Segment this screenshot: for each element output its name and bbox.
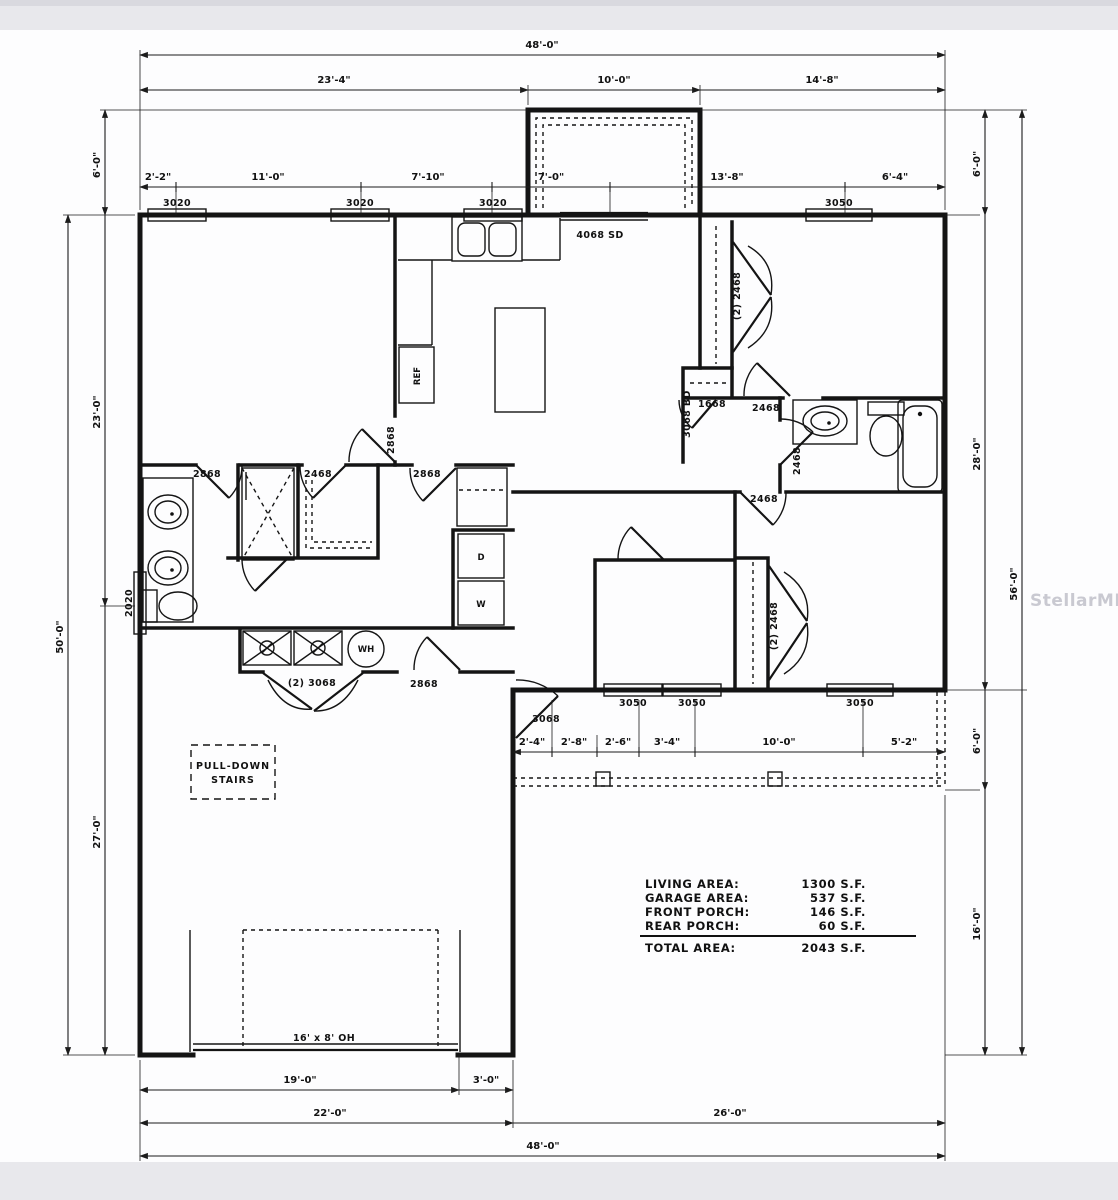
door-label: 2468 [792,447,803,475]
area-row-value: 1300 S.F. [801,877,866,891]
laundry-closet: D W [458,534,504,625]
dim-row2: 13'-8" [710,172,743,183]
dim-right: 6'-0" [972,151,983,177]
dim-left-overall: 50'-0" [55,620,66,653]
area-row-value: 537 S.F. [810,891,866,905]
door-label: 2868 [410,679,438,690]
door-label: 2468 [304,469,332,480]
floor-plan-drawing: 4068 SD REF D W [0,0,1118,1200]
dim-porch: 2'-4" [519,737,545,748]
dim-row2: 7'-0" [538,172,564,183]
dryer-label: D [477,553,484,563]
area-row-label: GARAGE AREA: [645,891,749,905]
porch-post [768,772,782,786]
closet-bed3: (2) 2468 [753,562,808,684]
window-label: 3050 [678,698,706,709]
area-total-label: TOTAL AREA: [645,941,736,955]
dim-porch: 3'-4" [654,737,680,748]
pull-down-stairs: PULL-DOWN STAIRS [191,745,275,799]
hvac-unit [294,631,342,665]
dim-bottom-overall: 48'-0" [526,1141,559,1152]
toilet [142,590,197,622]
page-top-edge [0,0,1118,6]
hvac-unit [243,631,291,665]
dim-right: 16'-0" [972,907,983,940]
dim-row2: 2'-2" [145,172,171,183]
dim-top-right: 14'-8" [805,75,838,86]
window-label: 3050 [846,698,874,709]
dim-bottom: 19'-0" [283,1075,316,1086]
washer-label: W [476,600,486,610]
window: 3020 [331,198,389,221]
dim-porch: 2'-6" [605,737,631,748]
dim-overall-width: 48'-0" [525,40,558,51]
sink [803,406,847,436]
door-label: 3068 BD [682,390,693,438]
dim-row2: 7'-10" [411,172,444,183]
dim-bottom: 22'-0" [313,1108,346,1119]
shower [242,468,294,560]
kitchen-island [495,308,545,412]
water-heater-label: WH [358,645,375,655]
door-label: 2468 [750,494,778,505]
area-row-label: FRONT PORCH: [645,905,750,919]
floor-plan-page: 4068 SD REF D W [0,0,1118,1200]
dim-left: 23'-0" [92,395,103,428]
utility-double-doors: (2) 3068 [263,673,363,711]
dim-left: 6'-0" [92,152,103,178]
door-label: 2468 [752,403,780,414]
dim-porch: 2'-8" [561,737,587,748]
utility-doors-label: (2) 3068 [288,678,336,689]
area-total-value: 2043 S.F. [801,941,866,955]
garage-door: 16' x 8' OH [190,930,460,1052]
window-label: 3020 [163,198,191,209]
dim-bottom: 26'-0" [713,1108,746,1119]
dim-right: 28'-0" [972,437,983,470]
walk-in-closet [306,480,372,548]
dim-bottom: 3'-0" [473,1075,499,1086]
dim-top-left: 23'-4" [317,75,350,86]
dim-right-overall: 56'-0" [1009,567,1020,600]
window-label: 3020 [479,198,507,209]
double-vanity [143,478,193,622]
dim-top-mid: 10'-0" [597,75,630,86]
door-label: 2868 [193,469,221,480]
closet-bed2: (2) 2468 [716,226,772,364]
porch-post [596,772,610,786]
dimension-lines: 48'-0" 23'-4" 10'-0" 14'-8" 2'-2" 11'-0"… [55,40,1027,1161]
dim-row2: 11'-0" [251,172,284,183]
area-row-label: REAR PORCH: [645,919,740,933]
dim-row2: 6'-4" [882,172,908,183]
area-row-label: LIVING AREA: [645,877,739,891]
dim-right: 6'-0" [972,728,983,754]
closet-doors-label: (2) 2468 [769,602,780,650]
area-row-value: 146 S.F. [810,905,866,919]
area-table: LIVING AREA: 1300 S.F. GARAGE AREA: 537 … [640,877,916,955]
sink [148,551,188,585]
area-row-value: 60 S.F. [819,919,866,933]
door-label: 3068 [532,714,560,725]
water-heater: WH [348,631,384,667]
master-bath [142,468,372,622]
window-label: 3050 [619,698,647,709]
door-label: 2868 [386,426,397,454]
garage: WH PULL-DOWN STAIRS 16' x 8' OH [190,631,460,1052]
sliding-door-label: 4068 SD [576,230,623,241]
window-label: 3050 [825,198,853,209]
kitchen: REF [398,217,560,412]
interior-walls [140,215,945,690]
window-label: 3020 [346,198,374,209]
page-bottom-band [0,1162,1118,1200]
pantry [457,468,507,526]
closet-doors-label: (2) 2468 [732,272,743,320]
attic-stairs-label-2: STAIRS [211,775,255,786]
door-label: 2868 [413,469,441,480]
window-label: 2020 [124,589,135,617]
window: 3050 [806,198,872,221]
refrigerator: REF [399,347,434,403]
kitchen-sink [452,217,522,261]
watermark: StellarMLS [1030,591,1118,611]
dim-porch: 5'-2" [891,737,917,748]
attic-stairs-label-1: PULL-DOWN [196,761,270,772]
ref-label: REF [413,367,423,385]
garage-door-label: 16' x 8' OH [293,1033,355,1044]
window: 3020 [148,198,206,221]
sink [148,495,188,529]
dim-porch: 10'-0" [762,737,795,748]
door-label: 1668 [698,399,726,410]
dim-left: 27'-0" [92,815,103,848]
